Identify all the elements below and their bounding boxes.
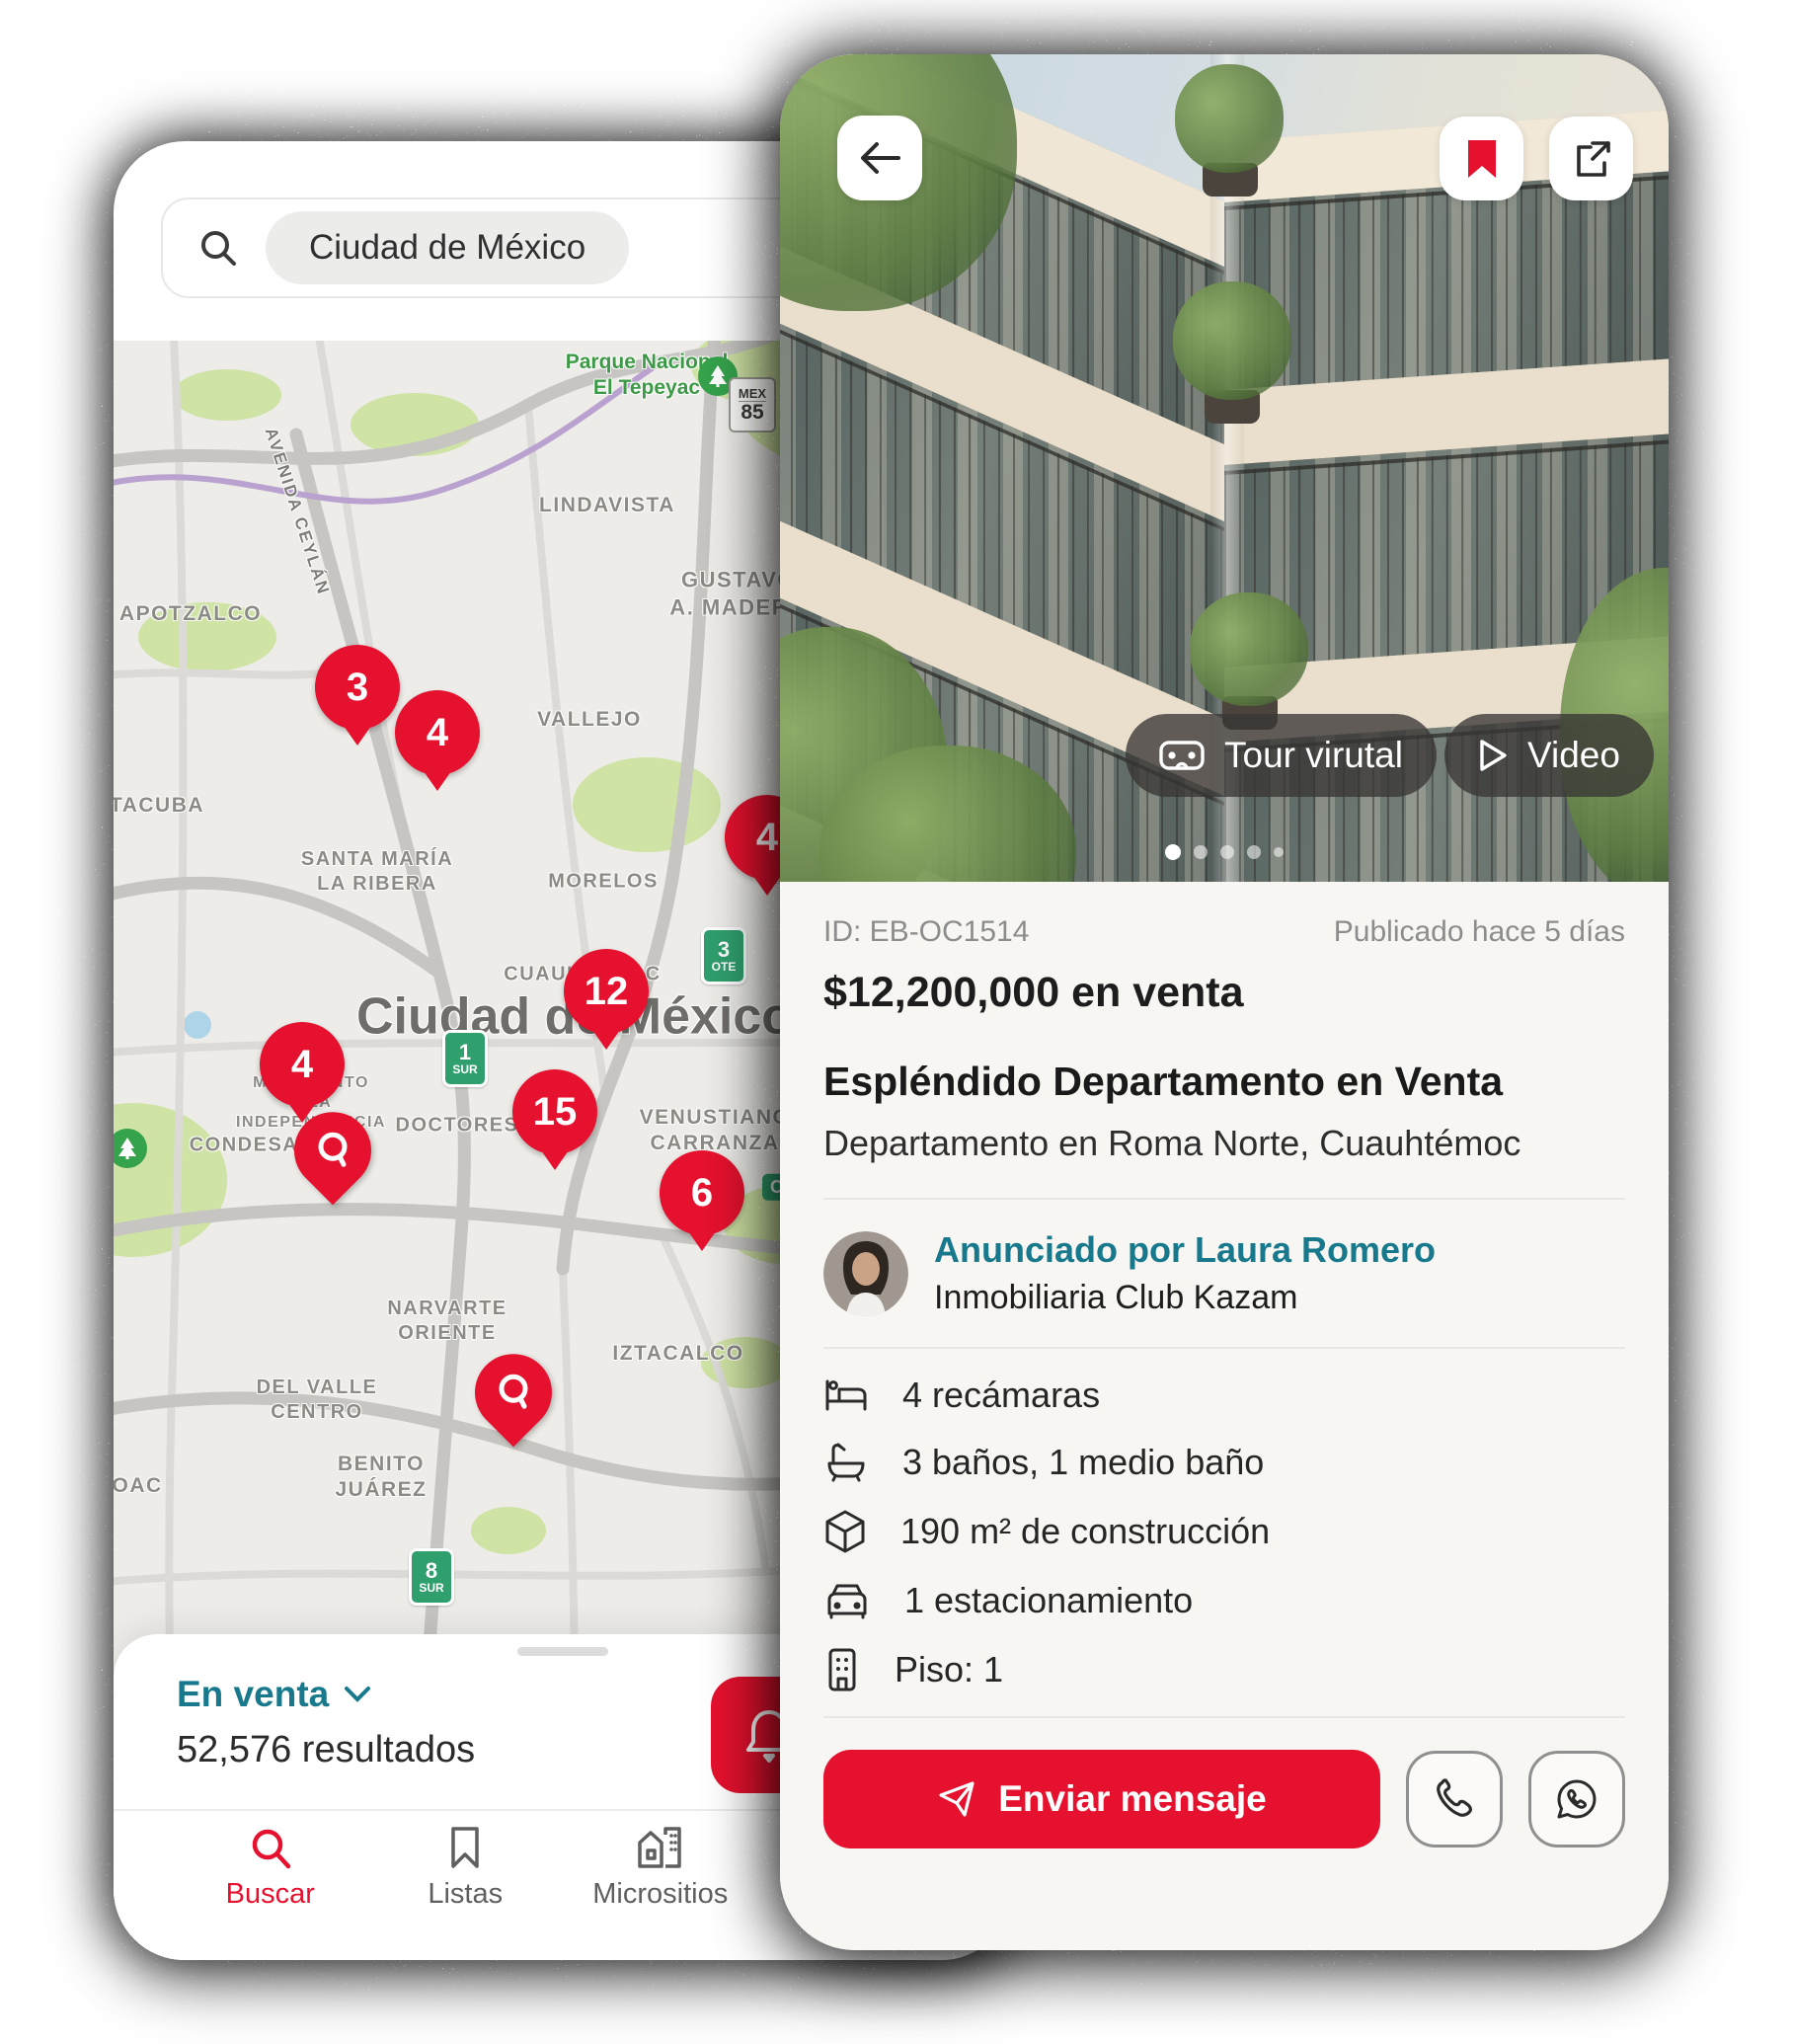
feature-bathrooms: 3 baños, 1 medio baño xyxy=(823,1442,1625,1483)
share-icon xyxy=(1571,139,1612,179)
sheet-drag-handle[interactable] xyxy=(517,1647,608,1656)
building-icon xyxy=(823,1647,861,1692)
agent-agency: Inmobiliaria Club Kazam xyxy=(934,1279,1436,1317)
feature-text: 1 estacionamiento xyxy=(904,1580,1193,1621)
feature-area: 190 m² de construcción xyxy=(823,1509,1625,1554)
map-label: DEL VALLE CENTRO xyxy=(257,1376,378,1425)
car-icon xyxy=(823,1582,871,1619)
save-bookmark-button[interactable] xyxy=(1440,117,1523,200)
feature-parking: 1 estacionamiento xyxy=(823,1580,1625,1621)
balcony-plant xyxy=(1175,64,1284,173)
bookmark-nav-icon xyxy=(444,1825,486,1870)
search-icon xyxy=(196,226,240,270)
virtual-tour-button[interactable]: Tour virutal xyxy=(1126,714,1437,797)
map-label: DOCTORES xyxy=(396,1114,519,1139)
screenshot-canvas: Ciudad de México xyxy=(0,0,1793,2044)
listing-phone: Tour virutal Video ID: EB-OC1514 Publica… xyxy=(780,54,1669,1950)
whatsapp-icon xyxy=(1555,1777,1598,1821)
map-pin-cluster[interactable]: 3 xyxy=(315,645,400,730)
nav-listas[interactable]: Listas xyxy=(368,1811,564,1960)
vr-goggles-icon xyxy=(1159,741,1205,770)
play-icon xyxy=(1478,739,1508,772)
virtual-tour-label: Tour virutal xyxy=(1224,735,1403,776)
agent-avatar xyxy=(823,1231,908,1316)
nav-label: Listas xyxy=(428,1878,503,1911)
feature-floor: Piso: 1 xyxy=(823,1647,1625,1692)
listing-subtitle: Departamento en Roma Norte, Cuauhtémoc xyxy=(823,1123,1625,1164)
map-pin-cluster[interactable]: 4 xyxy=(260,1022,345,1107)
feature-text: 3 baños, 1 medio baño xyxy=(902,1442,1264,1483)
bath-icon xyxy=(823,1442,869,1483)
map-pin-brand[interactable] xyxy=(459,1338,568,1447)
actions-row: Enviar mensaje xyxy=(823,1750,1625,1848)
search-nav-icon xyxy=(248,1825,293,1870)
map-pin-cluster[interactable]: 15 xyxy=(512,1069,597,1154)
map-pin-cluster[interactable]: 4 xyxy=(395,690,480,775)
phone-icon xyxy=(1434,1778,1475,1820)
gallery-dot[interactable] xyxy=(1194,845,1208,859)
map-label: BENITO JUÁREZ xyxy=(335,1452,427,1504)
feature-bedrooms: 4 recámaras xyxy=(823,1375,1625,1416)
gallery-dot[interactable] xyxy=(1165,844,1181,860)
gallery-dots[interactable] xyxy=(780,844,1669,860)
map-label: TACUBA xyxy=(114,793,204,819)
feature-text: Piso: 1 xyxy=(895,1649,1003,1690)
map-label: VALLEJO xyxy=(537,707,642,733)
chevron-down-icon xyxy=(343,1685,372,1704)
divider xyxy=(823,1347,1625,1349)
listing-photo[interactable]: Tour virutal Video xyxy=(780,54,1669,882)
bed-icon xyxy=(823,1376,869,1415)
map-label: MORELOS xyxy=(548,870,659,895)
road-shield: 8SUR xyxy=(409,1548,454,1606)
cube-icon xyxy=(823,1509,867,1554)
gallery-dot[interactable] xyxy=(1220,845,1234,859)
filter-label: En venta xyxy=(177,1674,329,1715)
send-icon xyxy=(937,1779,976,1819)
call-button[interactable] xyxy=(1406,1751,1503,1847)
divider xyxy=(823,1198,1625,1200)
listing-title: Espléndido Departamento en Venta xyxy=(823,1059,1625,1105)
gallery-dot[interactable] xyxy=(1274,847,1284,857)
video-label: Video xyxy=(1527,735,1620,776)
listing-price: $12,200,000 en venta xyxy=(823,969,1625,1017)
buildings-nav-icon xyxy=(636,1825,685,1870)
map-pin-cluster[interactable]: 6 xyxy=(660,1150,744,1235)
balcony-plant xyxy=(1190,592,1308,706)
video-button[interactable]: Video xyxy=(1444,714,1654,797)
nav-micrositios[interactable]: Micrositios xyxy=(563,1811,758,1960)
whatsapp-button[interactable] xyxy=(1528,1751,1625,1847)
send-message-label: Enviar mensaje xyxy=(998,1778,1266,1820)
map-label: IZTACALCO xyxy=(612,1341,743,1367)
map-pin-cluster[interactable]: 12 xyxy=(564,949,649,1034)
search-input[interactable]: Ciudad de México xyxy=(266,211,629,284)
back-button[interactable] xyxy=(837,116,922,200)
nav-label: Buscar xyxy=(226,1878,315,1911)
features-list: 4 recámaras 3 baños, 1 medio baño 190 m²… xyxy=(823,1375,1625,1692)
map-label: LINDAVISTA xyxy=(539,493,675,518)
listing-content: ID: EB-OC1514 Publicado hace 5 días $12,… xyxy=(780,882,1669,1950)
balcony-plant xyxy=(1173,281,1291,400)
share-button[interactable] xyxy=(1549,117,1633,200)
agent-row[interactable]: Anunciado por Laura Romero Inmobiliaria … xyxy=(823,1229,1625,1317)
feature-text: 4 recámaras xyxy=(902,1375,1100,1416)
send-message-button[interactable]: Enviar mensaje xyxy=(823,1750,1380,1848)
nav-label: Micrositios xyxy=(592,1878,728,1911)
divider xyxy=(823,1716,1625,1718)
listing-id: ID: EB-OC1514 xyxy=(823,915,1029,949)
gallery-dot[interactable] xyxy=(1247,845,1261,859)
published-date: Publicado hace 5 días xyxy=(1334,915,1625,949)
road-shield: MEX85 xyxy=(729,377,776,432)
back-arrow-icon xyxy=(859,141,900,175)
agent-name-link[interactable]: Anunciado por Laura Romero xyxy=(934,1229,1436,1271)
bookmark-filled-icon xyxy=(1466,140,1498,178)
map-label: NARVARTE ORIENTE xyxy=(387,1297,507,1346)
feature-text: 190 m² de construcción xyxy=(900,1511,1270,1552)
map-label: CONDESA xyxy=(190,1134,299,1158)
map-label: VENUSTIANO CARRANZA xyxy=(640,1105,791,1157)
map-label: XCOAC xyxy=(114,1473,163,1499)
map-label: APOTZALCO xyxy=(119,601,262,627)
nav-buscar[interactable]: Buscar xyxy=(173,1811,368,1960)
sale-filter-dropdown[interactable]: En venta xyxy=(177,1674,372,1715)
map-label: SANTA MARÍA LA RIBERA xyxy=(301,847,453,897)
road-shield: 3OTE xyxy=(701,927,746,984)
results-count: 52,576 resultados xyxy=(177,1729,475,1771)
road-shield: 1SUR xyxy=(442,1030,488,1087)
map-pin-brand[interactable] xyxy=(278,1096,387,1205)
